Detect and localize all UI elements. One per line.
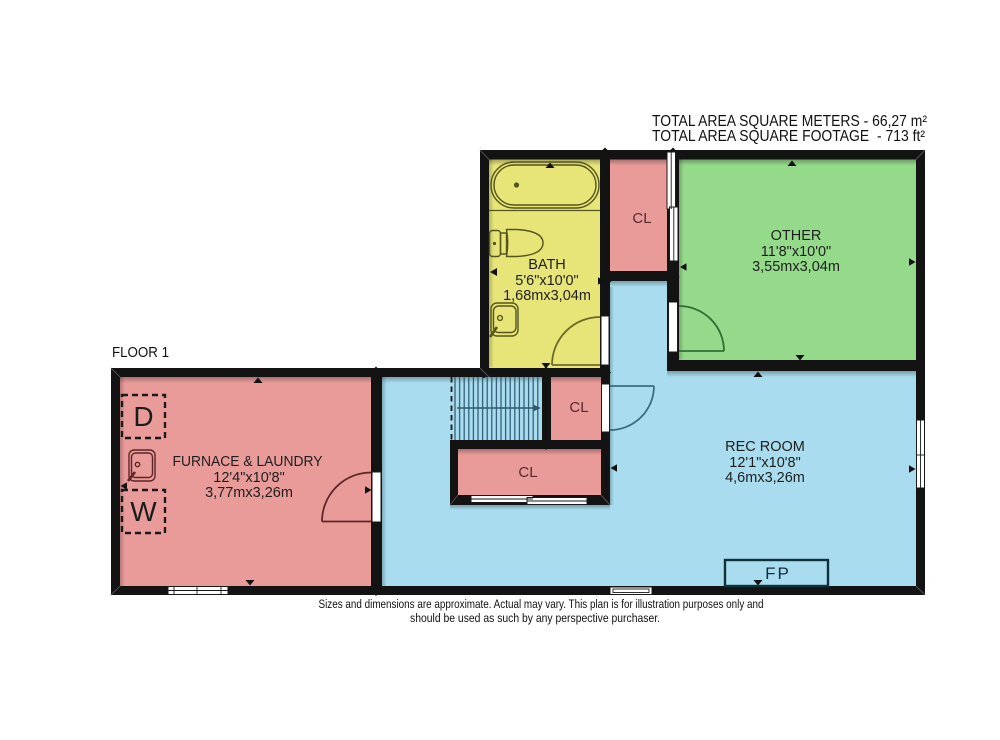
svg-text:BATH: BATH: [528, 257, 566, 273]
svg-text:should be used as such by any: should be used as such by any perspectiv…: [410, 611, 660, 625]
svg-text:12'1"x10'8": 12'1"x10'8": [729, 455, 800, 471]
svg-text:W: W: [130, 496, 157, 527]
svg-text:3,55mx3,04m: 3,55mx3,04m: [752, 259, 840, 275]
svg-text:CL: CL: [518, 464, 537, 481]
svg-text:D: D: [133, 401, 153, 432]
svg-text:REC ROOM: REC ROOM: [725, 439, 805, 455]
svg-text:11'8"x10'0": 11'8"x10'0": [761, 244, 831, 260]
svg-text:FLOOR 1: FLOOR 1: [112, 344, 169, 361]
svg-text:CL: CL: [569, 399, 588, 416]
svg-text:FURNACE & LAUNDRY: FURNACE & LAUNDRY: [173, 454, 323, 470]
svg-text:5'6"x10'0": 5'6"x10'0": [515, 273, 578, 289]
svg-text:FP: FP: [765, 564, 791, 583]
svg-text:4,6mx3,26m: 4,6mx3,26m: [725, 470, 805, 486]
svg-text:3,77mx3,26m: 3,77mx3,26m: [205, 485, 293, 501]
svg-text:1,68mx3,04m: 1,68mx3,04m: [503, 288, 591, 304]
svg-text:Sizes and dimensions are appro: Sizes and dimensions are approximate. Ac…: [319, 597, 764, 611]
svg-text:OTHER: OTHER: [771, 228, 822, 244]
svg-text:12'4"x10'8": 12'4"x10'8": [213, 470, 284, 486]
svg-text:TOTAL AREA SQUARE FOOTAGE - 7: TOTAL AREA SQUARE FOOTAGE - 713 ft²: [652, 128, 925, 145]
svg-text:CL: CL: [632, 210, 651, 227]
